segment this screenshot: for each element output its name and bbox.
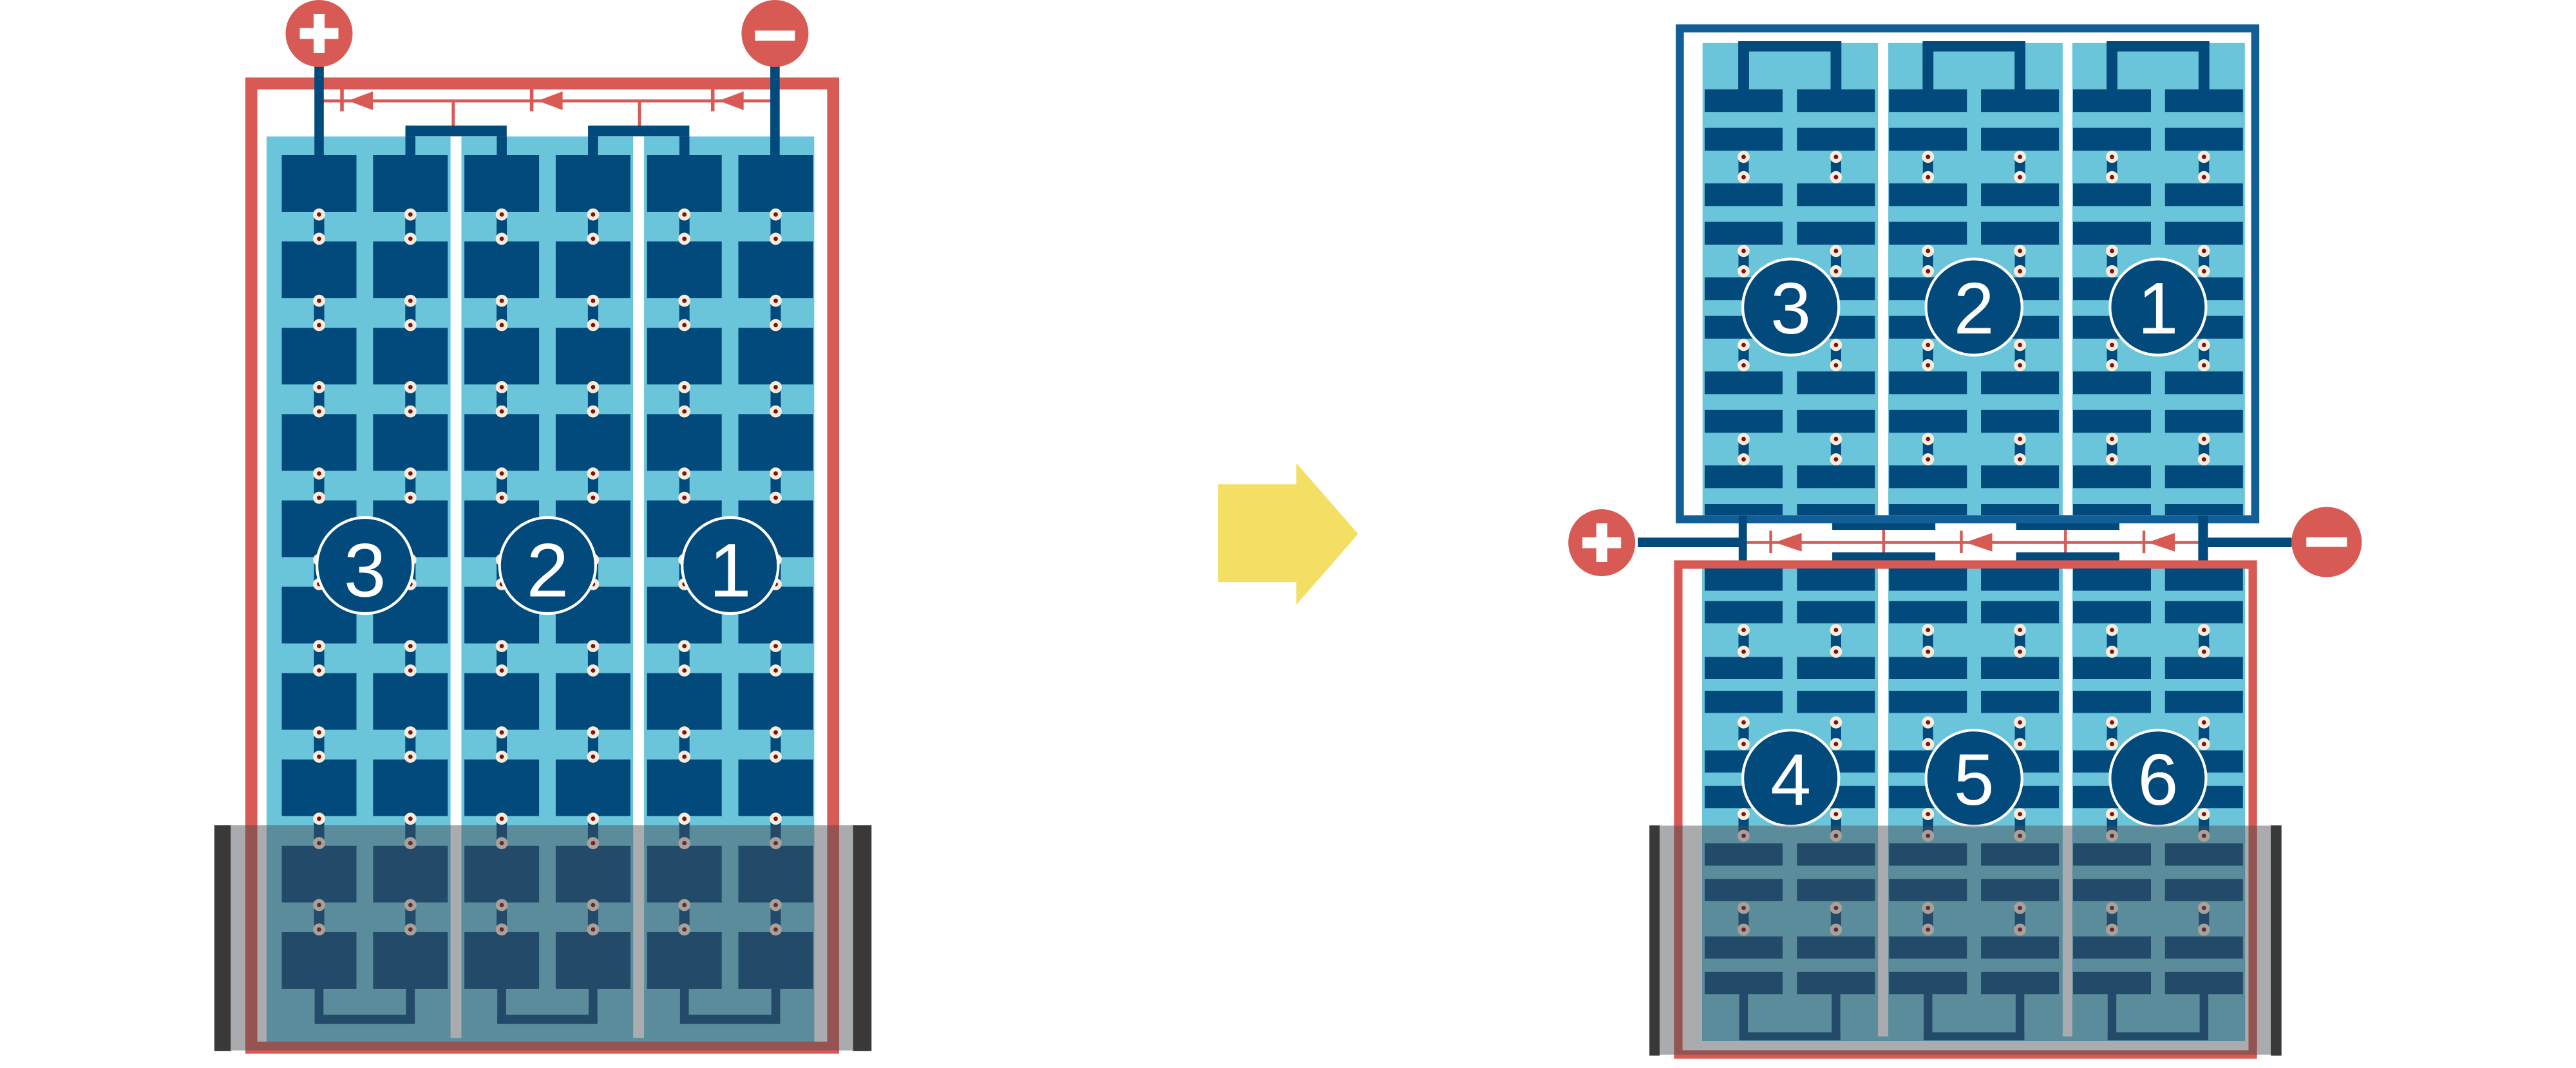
svg-text:4: 4 [1770,739,1811,820]
svg-text:5: 5 [1954,739,1994,820]
svg-text:2: 2 [526,529,569,614]
svg-text:1: 1 [2137,268,2178,349]
svg-text:3: 3 [344,529,386,614]
svg-text:2: 2 [1954,268,1994,349]
svg-text:3: 3 [1770,268,1811,349]
svg-text:1: 1 [709,529,752,614]
svg-text:6: 6 [2137,739,2178,820]
